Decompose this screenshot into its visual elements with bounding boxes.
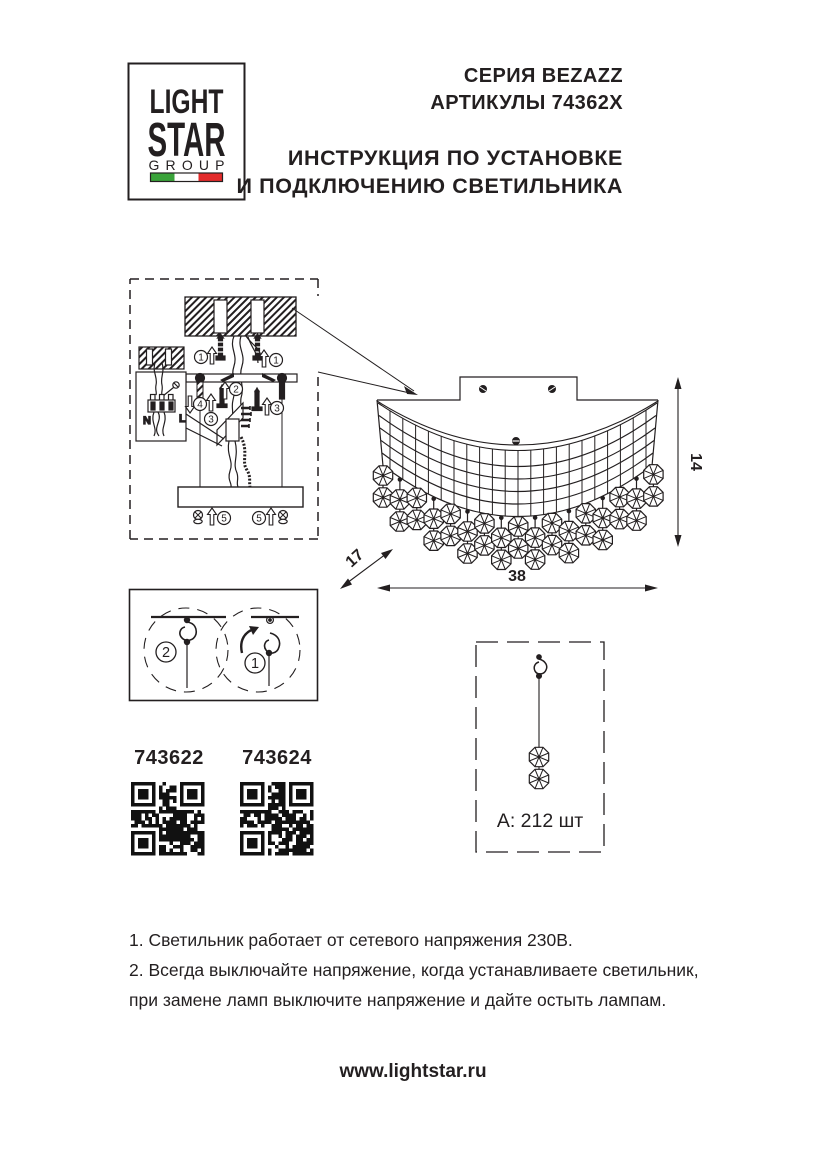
crystal-icon xyxy=(627,511,646,530)
terminal-l-label: L xyxy=(179,413,186,425)
note-line-2: 2. Всегда выключайте напряжение, когда у… xyxy=(129,955,699,985)
crystal-icon xyxy=(475,514,494,533)
qr-code-743624 xyxy=(240,782,314,856)
website-footer: www.lightstar.ru xyxy=(0,1061,826,1083)
instruction-title-line2: И ПОДКЛЮЧЕНИЮ СВЕТИЛЬНИКА xyxy=(237,172,623,200)
article-number-2: 743624 xyxy=(237,747,317,770)
svg-text:4: 4 xyxy=(197,400,203,411)
svg-text:2: 2 xyxy=(162,645,170,661)
svg-text:1: 1 xyxy=(198,353,204,364)
step-label-3: 3 xyxy=(205,413,218,426)
qr-code-743622 xyxy=(131,782,205,856)
notes: 1. Светильник работает от сетевого напря… xyxy=(129,925,699,1015)
crystal-icon xyxy=(644,487,663,506)
lamp-drawing: 14 38 17 xyxy=(340,377,704,592)
leader-lines xyxy=(292,308,418,395)
note-line-3: при замене ламп выключите напряжение и д… xyxy=(129,985,699,1015)
hook-step-label-1: 1 xyxy=(245,653,265,673)
crystal-icon xyxy=(525,550,544,569)
series-header: СЕРИЯ BEZAZZ АРТИКУЛЫ 74362X xyxy=(430,63,623,117)
step-label-5: 5 xyxy=(253,512,266,525)
svg-text:38: 38 xyxy=(508,568,526,585)
shade-right-edge xyxy=(652,400,658,466)
dimension-depth: 17 xyxy=(340,546,393,589)
svg-text:2: 2 xyxy=(233,385,239,396)
svg-text:14: 14 xyxy=(687,453,704,471)
step-label-1: 1 xyxy=(195,351,208,364)
fixture-wires xyxy=(228,437,250,487)
logo-box: LIGHT STAR GROUP xyxy=(129,64,245,200)
wall-plate xyxy=(377,377,658,400)
step-label-4: 4 xyxy=(194,398,207,411)
note-line-1: 1. Светильник работает от сетевого напря… xyxy=(129,925,699,955)
wall-section xyxy=(185,297,296,336)
svg-text:3: 3 xyxy=(208,415,214,426)
step-label-5: 5 xyxy=(218,512,231,525)
svg-text:3: 3 xyxy=(274,404,280,415)
hook-step-diagram: 2 1 xyxy=(130,590,318,701)
dimension-width: 38 xyxy=(377,568,658,592)
step-label-3: 3 xyxy=(271,402,284,415)
crystal-icon xyxy=(644,465,663,484)
svg-text:1: 1 xyxy=(251,656,259,672)
svg-text:17: 17 xyxy=(343,546,368,571)
crystal-icon xyxy=(441,504,460,523)
svg-text:5: 5 xyxy=(256,514,262,525)
crystal-icon xyxy=(559,543,578,562)
terminal-n-label: N xyxy=(143,415,151,427)
installation-diagram: N L 1 1 2 3 3 4 5 5 xyxy=(130,279,318,539)
fixture-base xyxy=(178,487,303,507)
hook-step-label-2: 2 xyxy=(156,642,176,662)
crystal-icon xyxy=(407,488,426,507)
shade-mesh-and-crystals xyxy=(373,401,663,570)
hook-icon xyxy=(534,655,547,679)
crystal-icon xyxy=(529,747,548,766)
svg-text:1: 1 xyxy=(273,356,279,367)
crystal-icon xyxy=(529,769,548,788)
step-label-1: 1 xyxy=(270,354,283,367)
crystal-icon xyxy=(492,550,511,569)
svg-text:5: 5 xyxy=(221,514,227,525)
rotate-arrow-icon xyxy=(241,626,259,653)
articles-title: АРТИКУЛЫ 74362X xyxy=(430,90,623,117)
pendant-count-label: А: 212 шт xyxy=(476,810,604,833)
italian-flag-icon xyxy=(151,173,223,182)
screw-icon xyxy=(252,388,262,411)
shade-left-edge xyxy=(377,400,383,466)
hook-icon xyxy=(180,617,196,688)
series-title: СЕРИЯ BEZAZZ xyxy=(430,63,623,90)
cap-nut-icon xyxy=(194,511,203,524)
hook-icon xyxy=(265,617,280,686)
crystal-icon xyxy=(593,530,612,549)
wall-anchor-icon xyxy=(216,334,225,360)
crystal-icon xyxy=(373,466,392,485)
connector-block xyxy=(217,403,251,445)
dimension-height: 14 xyxy=(675,377,705,547)
instruction-title: ИНСТРУКЦИЯ ПО УСТАНОВКЕ И ПОДКЛЮЧЕНИЮ СВ… xyxy=(237,144,623,200)
cap-nut-icon xyxy=(279,511,288,524)
step-label-2: 2 xyxy=(230,383,243,396)
instruction-title-line1: ИНСТРУКЦИЯ ПО УСТАНОВКЕ xyxy=(237,144,623,172)
article-number-1: 743622 xyxy=(129,747,209,770)
